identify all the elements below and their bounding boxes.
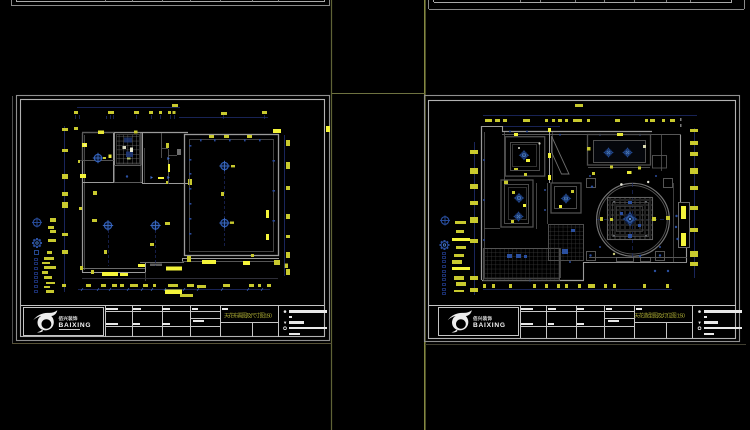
- svg-text:佰兴装饰: 佰兴装饰: [59, 315, 78, 322]
- svg-text:BAIXING: BAIXING: [473, 322, 505, 329]
- svg-text:佰兴装饰: 佰兴装饰: [473, 315, 492, 322]
- svg-text:BAIXING: BAIXING: [59, 322, 91, 329]
- svg-text:天花布置图及尺寸图 1:50: 天花布置图及尺寸图 1:50: [224, 312, 272, 320]
- svg-text:天花造型图及灯位图 1:50: 天花造型图及灯位图 1:50: [634, 312, 685, 320]
